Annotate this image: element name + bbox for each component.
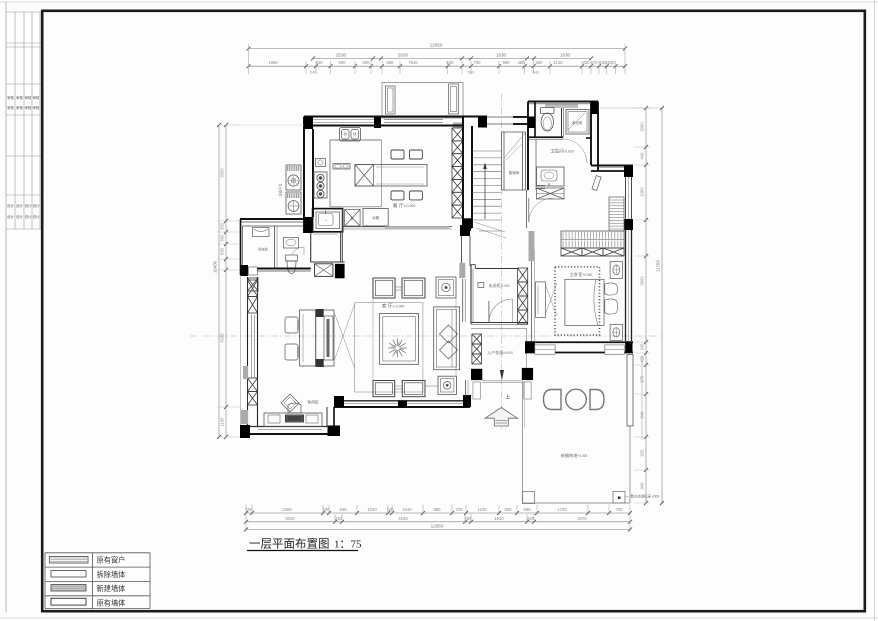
svg-text:980: 980 bbox=[434, 507, 442, 512]
svg-text:审核: 审核 bbox=[7, 95, 14, 100]
svg-text:11760: 11760 bbox=[656, 260, 661, 272]
svg-text:2060: 2060 bbox=[640, 122, 645, 132]
svg-text:690: 690 bbox=[524, 507, 532, 512]
svg-text:审核: 审核 bbox=[7, 105, 14, 110]
svg-text:470: 470 bbox=[456, 507, 464, 512]
svg-text:新建墙体: 新建墙体 bbox=[97, 584, 126, 593]
svg-text:淋浴房: 淋浴房 bbox=[572, 120, 583, 125]
svg-text:2530: 2530 bbox=[336, 52, 347, 57]
svg-text:设计: 设计 bbox=[16, 203, 23, 208]
svg-text:3000: 3000 bbox=[285, 516, 295, 521]
svg-text:660: 660 bbox=[468, 70, 475, 75]
svg-text:10430: 10430 bbox=[213, 260, 218, 273]
svg-text:客 厅± 0.000: 客 厅± 0.000 bbox=[382, 303, 405, 310]
svg-text:480: 480 bbox=[518, 60, 526, 65]
svg-text:设计: 设计 bbox=[25, 203, 32, 208]
svg-text:1060: 1060 bbox=[640, 187, 645, 197]
svg-text:1960: 1960 bbox=[268, 60, 278, 65]
svg-text:630: 630 bbox=[316, 60, 324, 65]
svg-text:140: 140 bbox=[387, 507, 395, 512]
svg-text:4160: 4160 bbox=[398, 516, 408, 521]
svg-text:设备平台: 设备平台 bbox=[278, 183, 283, 197]
svg-text:430: 430 bbox=[583, 60, 591, 65]
svg-text:拆除墙体: 拆除墙体 bbox=[97, 570, 126, 579]
svg-text:7540: 7540 bbox=[408, 60, 418, 65]
svg-text:940: 940 bbox=[340, 507, 348, 512]
svg-text:620: 620 bbox=[608, 60, 616, 65]
svg-text:3500: 3500 bbox=[220, 168, 225, 178]
svg-text:1930: 1930 bbox=[496, 52, 507, 57]
svg-text:240: 240 bbox=[527, 516, 535, 521]
svg-text:3900: 3900 bbox=[640, 276, 645, 286]
svg-text:原有墙体: 原有墙体 bbox=[97, 598, 126, 607]
svg-text:主卧室+0.050: 主卧室+0.050 bbox=[570, 271, 593, 278]
svg-text:设计: 设计 bbox=[33, 203, 40, 208]
svg-text:1100: 1100 bbox=[477, 507, 487, 512]
svg-text:审核: 审核 bbox=[25, 95, 32, 100]
svg-text:650: 650 bbox=[387, 60, 395, 65]
svg-text:1140: 1140 bbox=[553, 60, 563, 65]
svg-text:12950: 12950 bbox=[431, 524, 444, 529]
svg-text:1930: 1930 bbox=[560, 52, 571, 57]
svg-text:1100: 1100 bbox=[220, 417, 225, 427]
svg-text:设计: 设计 bbox=[16, 214, 23, 219]
svg-text:审核: 审核 bbox=[33, 105, 40, 110]
svg-text:审核: 审核 bbox=[25, 105, 32, 110]
svg-text:2400: 2400 bbox=[282, 507, 292, 512]
svg-text:1730: 1730 bbox=[557, 507, 567, 512]
svg-text:12950: 12950 bbox=[430, 43, 443, 48]
svg-text:240: 240 bbox=[640, 343, 645, 351]
svg-text:1040: 1040 bbox=[367, 507, 377, 512]
svg-text:260: 260 bbox=[220, 222, 225, 230]
svg-text:一层平面布置图: 一层平面布置图 bbox=[249, 538, 330, 551]
svg-text:冰箱: 冰箱 bbox=[372, 215, 380, 220]
svg-text:卫生间-0.030: 卫生间-0.030 bbox=[550, 148, 573, 155]
svg-text:900: 900 bbox=[339, 60, 347, 65]
svg-text:原有窗户: 原有窗户 bbox=[97, 556, 126, 565]
svg-text:660: 660 bbox=[220, 234, 225, 242]
svg-text:休闲区: 休闲区 bbox=[307, 400, 319, 405]
svg-text:4200: 4200 bbox=[220, 333, 225, 343]
svg-text:设计: 设计 bbox=[7, 203, 14, 208]
svg-text:630: 630 bbox=[220, 247, 225, 255]
svg-text:600: 600 bbox=[363, 60, 371, 65]
svg-text:950: 950 bbox=[503, 60, 511, 65]
svg-text:设计: 设计 bbox=[33, 214, 40, 219]
svg-text:新铺砖地+0.000: 新铺砖地+0.000 bbox=[561, 452, 588, 459]
svg-text:640: 640 bbox=[600, 60, 608, 65]
svg-text:蓄水池顶标高 ±500: 蓄水池顶标高 ±500 bbox=[631, 494, 660, 499]
svg-text:590: 590 bbox=[536, 60, 544, 65]
svg-text:台: 台 bbox=[350, 216, 353, 221]
svg-text:470: 470 bbox=[591, 60, 599, 65]
svg-text:楼梯间: 楼梯间 bbox=[509, 170, 520, 175]
svg-text:餐 厅± 0.000: 餐 厅± 0.000 bbox=[393, 202, 416, 209]
svg-text:设计: 设计 bbox=[25, 214, 32, 219]
svg-text:940: 940 bbox=[640, 482, 645, 490]
svg-text:620: 620 bbox=[505, 507, 513, 512]
svg-text:洗衣机: 洗衣机 bbox=[258, 247, 269, 252]
svg-text:审核: 审核 bbox=[33, 95, 40, 100]
svg-text:700: 700 bbox=[474, 60, 482, 65]
svg-text:700: 700 bbox=[616, 507, 624, 512]
svg-text:上: 上 bbox=[505, 393, 511, 401]
svg-text:设计: 设计 bbox=[7, 214, 14, 219]
svg-text:1040: 1040 bbox=[402, 507, 412, 512]
svg-text:1930: 1930 bbox=[494, 516, 504, 521]
svg-text:440: 440 bbox=[640, 152, 645, 160]
svg-text:240: 240 bbox=[335, 516, 343, 521]
svg-text:920: 920 bbox=[640, 449, 645, 457]
svg-text:3470: 3470 bbox=[577, 516, 587, 521]
svg-text:审核: 审核 bbox=[16, 95, 23, 100]
svg-text:2930: 2930 bbox=[398, 52, 409, 57]
svg-text:1：75: 1：75 bbox=[334, 539, 362, 551]
svg-text:审核: 审核 bbox=[16, 105, 23, 110]
